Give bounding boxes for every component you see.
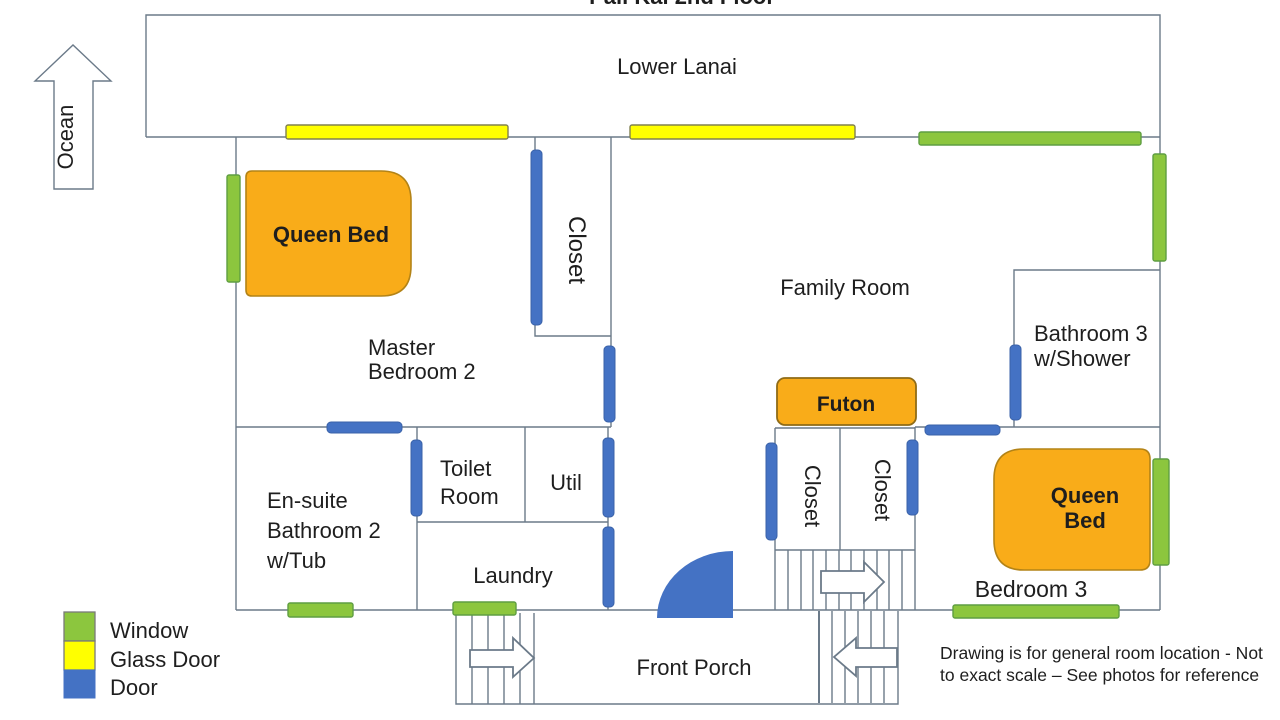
svg-text:w/Shower: w/Shower [1033,346,1131,371]
svg-text:Drawing is for general room lo: Drawing is for general room location - N… [940,643,1263,663]
svg-text:Laundry: Laundry [473,563,553,588]
svg-text:to exact scale – See photos fo: to exact scale – See photos for referenc… [940,665,1259,685]
svg-text:Util: Util [550,470,582,495]
svg-text:Glass Door: Glass Door [110,647,220,672]
svg-text:Door: Door [110,675,158,700]
svg-text:Front Porch: Front Porch [637,655,752,680]
svg-text:w/Tub: w/Tub [266,548,326,573]
svg-text:Window: Window [110,618,188,643]
svg-text:Queen Bed: Queen Bed [273,222,389,247]
svg-text:Queen: Queen [1051,483,1119,508]
svg-text:Closet: Closet [800,465,825,527]
svg-text:Toilet: Toilet [440,456,491,481]
svg-text:Bedroom 2: Bedroom 2 [368,359,476,384]
svg-text:Bathroom 3: Bathroom 3 [1034,321,1148,346]
svg-text:En-suite: En-suite [267,488,348,513]
svg-text:Closet: Closet [563,216,590,284]
svg-text:Futon: Futon [817,393,875,416]
svg-text:Master: Master [368,335,435,360]
svg-text:Closet: Closet [870,459,895,521]
svg-text:Bedroom 3: Bedroom 3 [975,576,1088,602]
svg-text:Family Room: Family Room [780,275,910,300]
svg-text:Pali Kai 2nd Floor: Pali Kai 2nd Floor [589,0,775,9]
svg-text:Room: Room [440,484,499,509]
svg-text:Bathroom 2: Bathroom 2 [267,518,381,543]
svg-text:Ocean: Ocean [53,105,78,170]
svg-text:Lower Lanai: Lower Lanai [617,54,737,79]
svg-text:Bed: Bed [1064,508,1106,533]
